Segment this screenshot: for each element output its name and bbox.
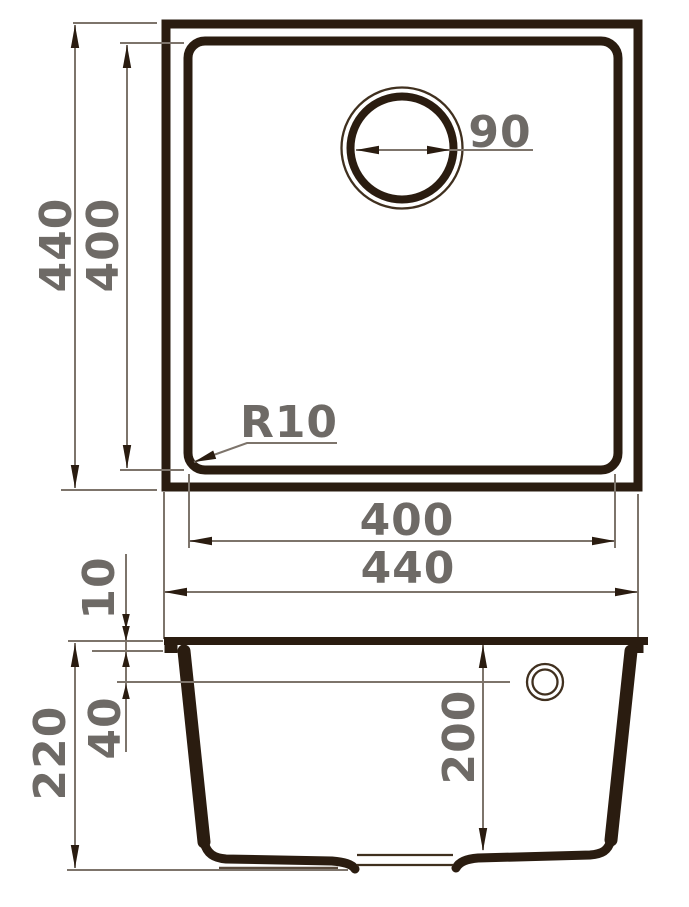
dim-label-outer-height: 440 <box>31 198 82 293</box>
arrowhead <box>615 588 638 596</box>
arrowhead <box>479 828 487 851</box>
arrowhead <box>71 25 79 48</box>
sink-technical-drawing: 90 R10 440 400 <box>0 0 689 907</box>
dim-label-rim-thickness: 10 <box>74 556 125 619</box>
arrowhead <box>356 146 379 154</box>
arrowhead <box>189 537 212 545</box>
dim-label-overflow-offset: 40 <box>80 696 131 759</box>
arrowhead <box>164 588 187 596</box>
arrowhead <box>592 537 615 545</box>
arrowhead <box>71 845 79 868</box>
arrowhead <box>71 644 79 667</box>
dim-label-bowl-depth: 200 <box>434 690 485 785</box>
dim-label-overall-height: 220 <box>25 706 76 801</box>
side-bottom-left <box>204 842 355 869</box>
arrowhead <box>123 445 131 468</box>
top-view: 90 R10 440 400 <box>31 23 638 639</box>
dim-label-drain-diameter: 90 <box>468 107 531 158</box>
side-right-wall <box>611 651 631 840</box>
arrowhead <box>122 652 130 667</box>
arrowhead <box>71 465 79 488</box>
overflow-inner-circle <box>533 670 558 695</box>
side-left-wall <box>184 651 204 842</box>
side-bottom-right <box>456 840 611 868</box>
dim-bowl-depth: 200 <box>434 645 487 851</box>
dim-label-inner-width: 400 <box>360 495 455 546</box>
arrowhead <box>479 645 487 668</box>
arrowhead <box>427 146 450 154</box>
dim-corner-radius: R10 <box>194 397 338 462</box>
side-view: 220 10 40 200 <box>25 554 648 870</box>
drawing-svg: 90 R10 440 400 <box>0 0 689 907</box>
arrowhead <box>122 626 130 641</box>
arrowhead <box>123 45 131 68</box>
dim-label-inner-height: 400 <box>78 198 129 293</box>
drain-outer-circle <box>342 88 463 209</box>
arrowhead <box>194 451 216 463</box>
dim-label-corner-radius: R10 <box>240 397 338 448</box>
dim-label-outer-width: 440 <box>361 543 456 594</box>
